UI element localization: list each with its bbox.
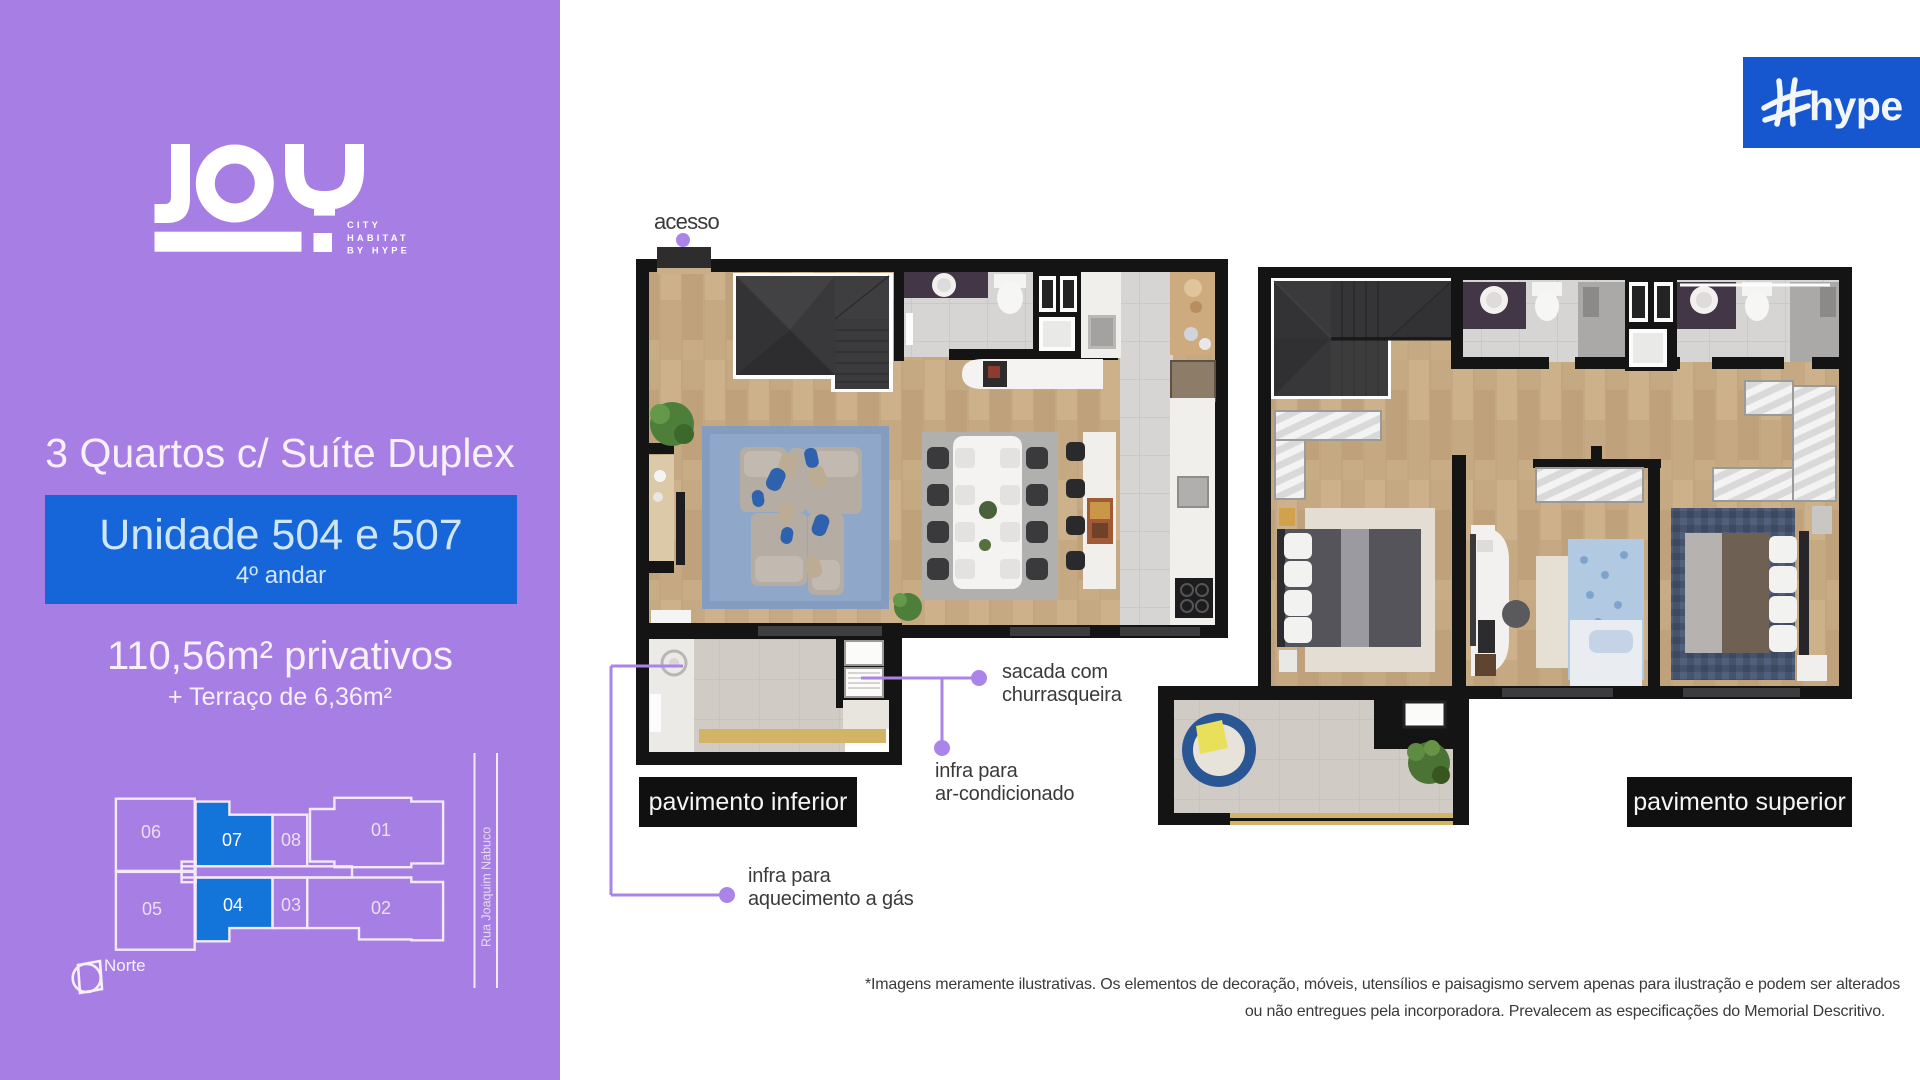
svg-text:01: 01 [371,820,391,840]
svg-text:BY HYPE: BY HYPE [347,246,410,256]
svg-text:07: 07 [222,830,242,850]
svg-text:02: 02 [371,898,391,918]
svg-text:CITY: CITY [347,220,381,230]
svg-text:04: 04 [223,895,243,915]
svg-text:hype: hype [1809,83,1903,129]
svg-text:06: 06 [141,822,161,842]
svg-text:Norte: Norte [104,956,146,975]
svg-text:05: 05 [142,899,162,919]
svg-text:03: 03 [281,895,301,915]
svg-text:Rua Joaquim Nabuco: Rua Joaquim Nabuco [480,827,494,947]
svg-text:08: 08 [281,830,301,850]
svg-text:HABITAT: HABITAT [347,233,409,243]
